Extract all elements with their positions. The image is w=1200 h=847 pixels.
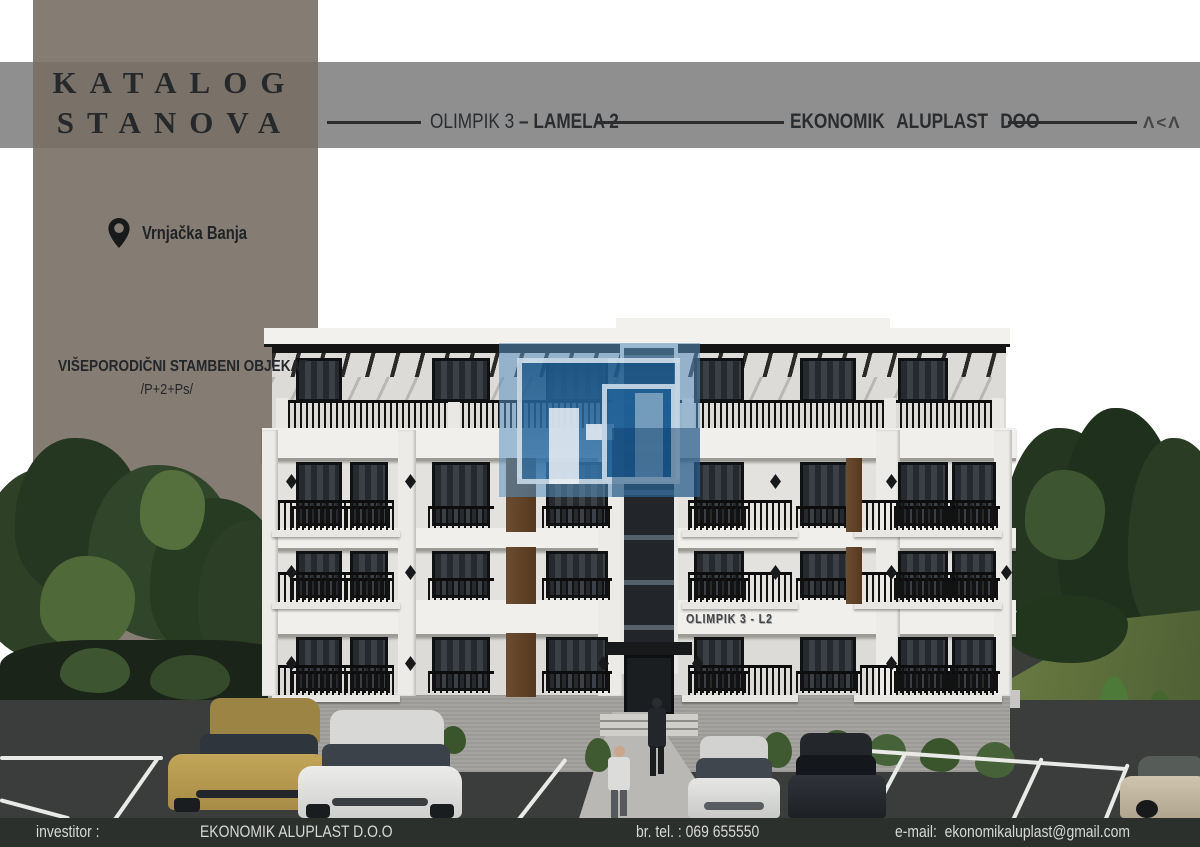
page-title: KATALOG STANOVA — [44, 63, 306, 143]
footer-phone: br. tel. : 069 655550 — [636, 822, 786, 842]
logo-watermark-door — [549, 408, 579, 484]
wood-panel — [846, 458, 862, 532]
juliet-railing — [796, 671, 860, 693]
page-title-line2: STANOVA — [44, 103, 306, 143]
object-type-label: VIŠEPORODIČNI STAMBENI OBJEKAT — [58, 358, 308, 376]
location-row: Vrnjačka Banja — [108, 218, 271, 248]
logo-watermark — [499, 343, 700, 497]
person-dark — [646, 698, 668, 776]
facade-window — [694, 358, 744, 402]
car-dark — [788, 733, 886, 818]
parking-line — [0, 756, 163, 760]
balcony-railing — [688, 500, 792, 530]
location-pin-icon — [108, 218, 130, 248]
balcony-slab — [682, 530, 798, 537]
balcony-slab — [682, 602, 798, 609]
balcony-slab — [854, 530, 1002, 537]
juliet-railing — [428, 578, 494, 600]
object-info: VIŠEPORODIČNI STAMBENI OBJEKAT /P+2+Ps/ — [36, 358, 298, 398]
balcony-slab — [854, 602, 1002, 609]
facade-window — [432, 358, 490, 402]
balcony-slab — [272, 530, 400, 537]
balcony-railing — [278, 572, 394, 602]
header-divider-line — [1008, 121, 1137, 124]
balcony-railing — [860, 572, 996, 602]
balcony-railing — [688, 665, 792, 695]
header-divider-line — [327, 121, 421, 124]
juliet-railing — [542, 506, 612, 528]
footer-email: e-mail: ekonomikaluplast@gmail.com — [895, 822, 1182, 842]
juliet-railing — [542, 671, 612, 693]
header-divider-line — [596, 121, 784, 124]
juliet-railing — [542, 578, 612, 600]
car-beige-right — [1120, 756, 1200, 818]
wood-panel — [506, 633, 536, 697]
project-separator: – — [519, 110, 529, 133]
juliet-railing — [428, 506, 494, 528]
wood-panel — [506, 547, 536, 604]
balcony-slab — [854, 695, 1002, 702]
building-sign: OLIMPIK 3 - L2 — [686, 611, 786, 626]
balcony-railing — [278, 665, 394, 695]
car-white-center — [688, 736, 780, 818]
brand-mark: Λ<Λ — [1143, 113, 1182, 133]
car-white-left — [298, 710, 462, 818]
facade-window — [800, 358, 856, 402]
balcony-slab — [682, 695, 798, 702]
object-floors-label: /P+2+Ps/ — [141, 381, 193, 398]
footer-email-label: e-mail: — [895, 822, 937, 841]
footer-investor-name: EKONOMIK ALUPLAST D.O.O — [200, 822, 435, 842]
logo-watermark-shadow-square — [612, 428, 700, 497]
balcony-slab — [272, 602, 400, 609]
balcony-railing — [860, 500, 996, 530]
project-name: OLIMPIK 3 — [430, 110, 514, 133]
facade-window — [898, 358, 948, 402]
entrance-canopy — [606, 642, 692, 655]
footer-investor-label: investitor : — [36, 822, 113, 842]
page-title-line1: KATALOG — [44, 63, 306, 103]
juliet-railing — [428, 671, 494, 693]
balcony-railing — [860, 665, 996, 695]
footer-email-value: ekonomikaluplast@gmail.com — [945, 822, 1130, 841]
wood-panel — [846, 547, 862, 604]
person-light — [604, 746, 634, 818]
balcony-railing — [278, 500, 394, 530]
catalog-cover-page: OLIMPIK 3 - L2 — [0, 0, 1200, 847]
location-label: Vrnjačka Banja — [142, 223, 247, 244]
